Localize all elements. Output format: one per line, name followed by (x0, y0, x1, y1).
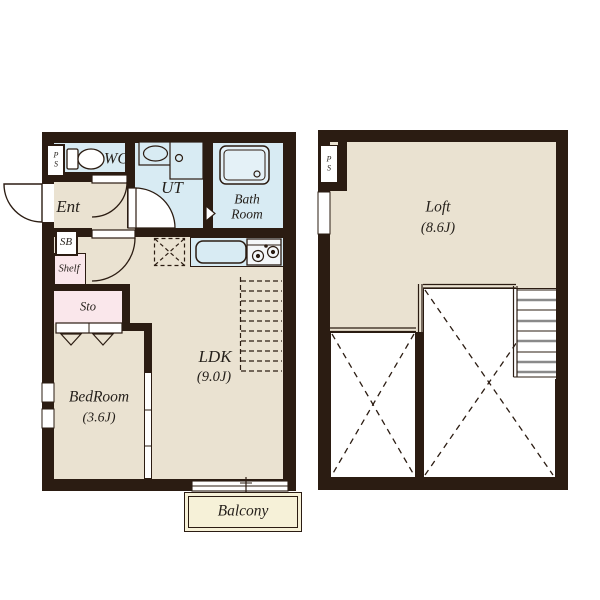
wall-between-voids (416, 332, 423, 478)
wall-1f-top (42, 132, 296, 143)
wall-mid-ut (135, 228, 203, 237)
wall-corridor-ut (127, 182, 135, 228)
wall-loft-top (318, 130, 568, 142)
wall-loft-bottom (318, 478, 568, 490)
kitchen-counter (190, 237, 285, 267)
wall-sto-partition-link (122, 323, 152, 331)
wall-1f-bottom (42, 479, 296, 491)
wall-1f-left (42, 132, 54, 491)
entry-door-arc (4, 184, 42, 222)
wall-sto-top (54, 284, 130, 291)
ps-loft-wall-right (338, 141, 347, 191)
label-shelf: Shelf (59, 263, 80, 274)
label-ps-1f: P S (54, 151, 59, 168)
label-ent: Ent (56, 198, 80, 216)
void-left (330, 332, 416, 478)
label-balcony: Balcony (218, 504, 269, 521)
wall-mid-right (203, 228, 283, 237)
wall-ut-bath (203, 143, 213, 237)
wall-wc-bottom (54, 172, 135, 182)
label-sto: Sto (80, 300, 96, 314)
label-ldk: LDK (198, 348, 231, 366)
label-bedroom-size: (3.6J) (82, 410, 115, 425)
label-loft: Loft (426, 200, 451, 217)
label-loft-size: (8.6J) (421, 221, 455, 237)
void-right (423, 288, 556, 478)
sliding-partition (144, 372, 152, 479)
label-bedroom: BedRoom (69, 390, 129, 407)
wall-loft-right (556, 130, 568, 490)
floor-plan-canvas: P S WC UT Bath Room Ent SB Shelf Sto Bed… (0, 0, 600, 600)
wall-1f-right (283, 132, 296, 491)
label-wc: WC (104, 150, 128, 167)
label-ldk-size: (9.0J) (197, 370, 231, 386)
label-ut: UT (161, 179, 183, 197)
ps-loft-wall-bottom (320, 183, 339, 191)
label-ps-loft: P S (327, 155, 332, 172)
label-sb: SB (60, 237, 72, 249)
label-bathroom: Bath Room (231, 192, 263, 221)
sliding-partition-solid (144, 331, 152, 372)
